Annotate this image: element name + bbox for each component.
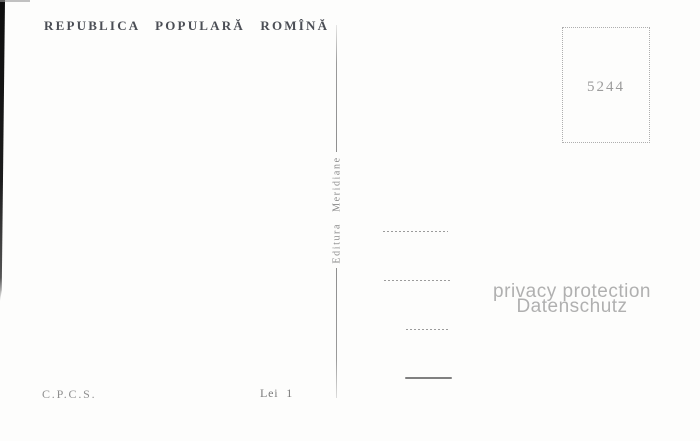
scan-edge-left bbox=[0, 0, 5, 302]
divider-line-top bbox=[336, 25, 337, 152]
country-title: REPUBLICA POPULARĂ ROMÎNĂ bbox=[44, 18, 329, 34]
agency-label: C.P.C.S. bbox=[42, 387, 96, 402]
stamp-box: 5244 bbox=[562, 27, 650, 143]
publisher-label: Editura Meridiane bbox=[332, 156, 343, 263]
postcard-back: REPUBLICA POPULARĂ ROMÎNĂ 5244 Editura M… bbox=[0, 0, 700, 441]
divider-line-bottom bbox=[336, 268, 337, 398]
address-line-2 bbox=[384, 280, 450, 281]
privacy-watermark: privacy protection Datenschutz bbox=[489, 284, 655, 314]
price-label: Lei 1 bbox=[260, 386, 293, 401]
address-line-4 bbox=[405, 377, 452, 379]
address-line-1 bbox=[383, 231, 448, 232]
address-line-3 bbox=[406, 329, 450, 330]
stamp-number: 5244 bbox=[587, 79, 625, 96]
scan-edge-top bbox=[0, 0, 30, 2]
